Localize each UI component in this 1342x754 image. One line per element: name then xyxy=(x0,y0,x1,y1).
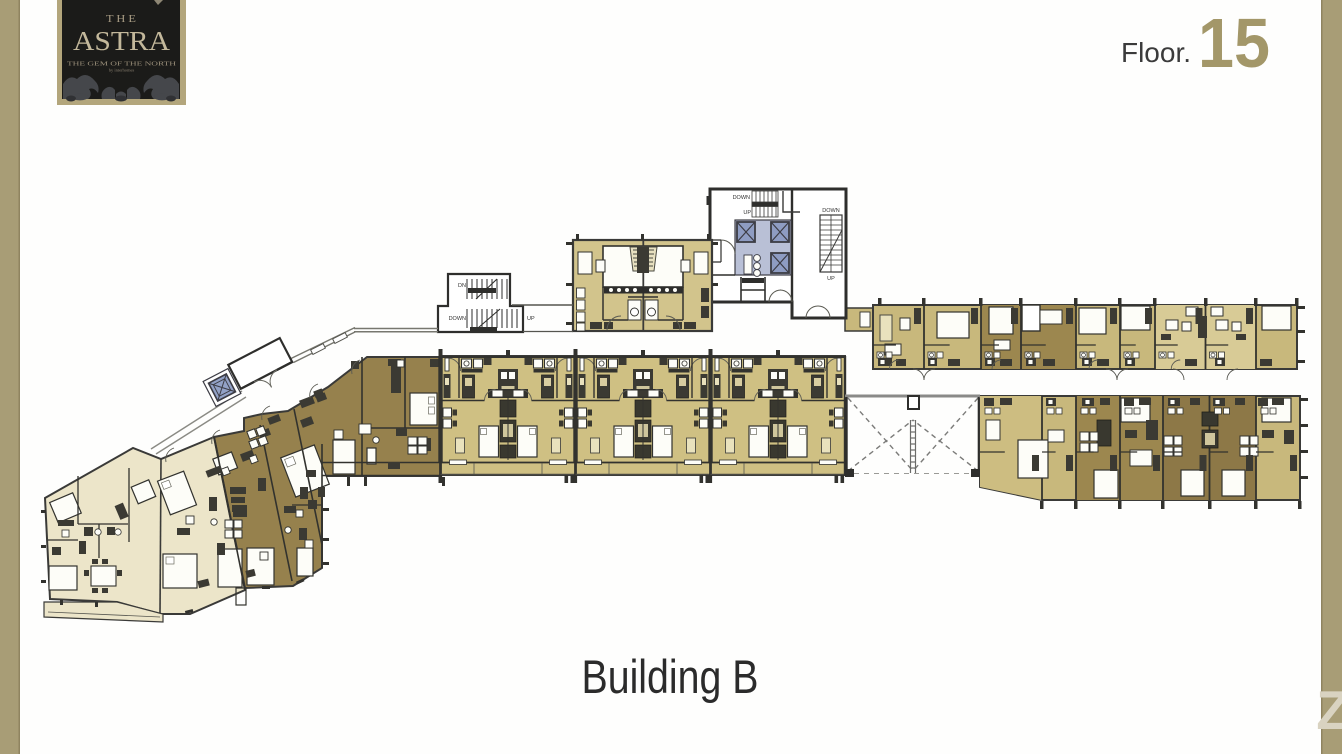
svg-text:by interhomes: by interhomes xyxy=(109,68,135,73)
svg-text:ASTRA: ASTRA xyxy=(73,26,171,56)
svg-text:15: 15 xyxy=(1198,4,1270,82)
svg-text:DOWN: DOWN xyxy=(449,316,466,322)
svg-text:Building B: Building B xyxy=(582,650,759,703)
svg-text:UP: UP xyxy=(527,316,535,322)
svg-text:Z: Z xyxy=(1316,679,1342,741)
svg-text:DOWN: DOWN xyxy=(733,195,750,201)
svg-text:Floor.: Floor. xyxy=(1121,37,1191,68)
svg-text:T H E: T H E xyxy=(106,14,136,25)
svg-text:UP: UP xyxy=(743,210,751,216)
svg-text:DOWN: DOWN xyxy=(822,208,839,214)
svg-text:THE GEM OF THE NORTH: THE GEM OF THE NORTH xyxy=(67,61,176,68)
svg-text:UP: UP xyxy=(827,276,835,282)
svg-text:DN: DN xyxy=(458,283,466,289)
